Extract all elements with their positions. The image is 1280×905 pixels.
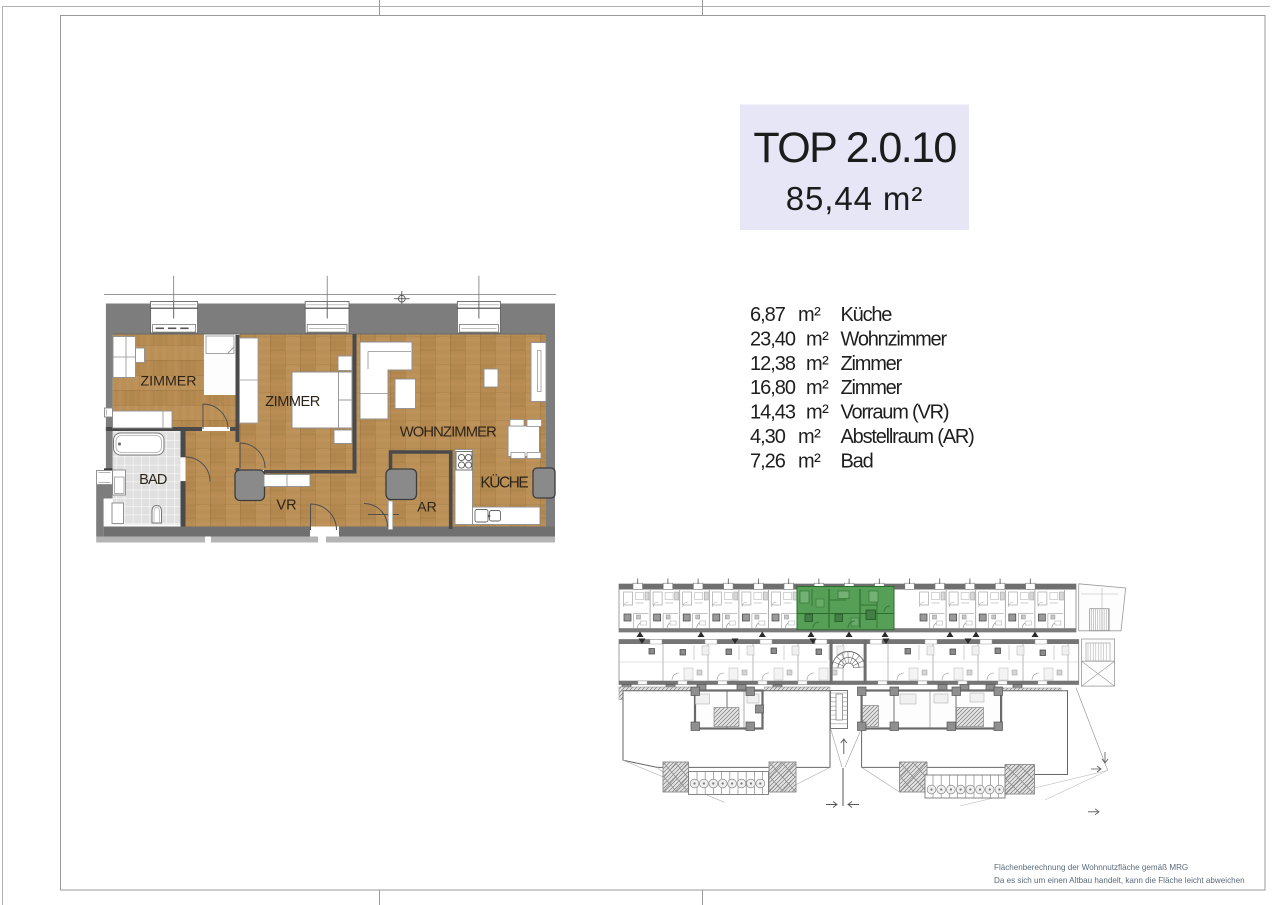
svg-text:m²: m²	[806, 377, 829, 399]
svg-text:14,43: 14,43	[750, 402, 796, 424]
svg-text:m²: m²	[806, 402, 829, 424]
svg-text:m²: m²	[806, 353, 829, 375]
svg-text:m²: m²	[798, 426, 821, 448]
svg-text:AR: AR	[417, 499, 436, 515]
svg-text:ZIMMER: ZIMMER	[265, 394, 320, 410]
svg-text:ZIMMER: ZIMMER	[141, 374, 197, 390]
svg-text:7,26: 7,26	[750, 450, 786, 472]
svg-text:Zimmer: Zimmer	[841, 353, 903, 375]
svg-text:KÜCHE: KÜCHE	[480, 474, 528, 492]
svg-text:Küche: Küche	[841, 304, 893, 326]
svg-text:BAD: BAD	[139, 472, 167, 488]
svg-text:TOP 2.0.10: TOP 2.0.10	[753, 124, 956, 172]
svg-text:WOHNZIMMER: WOHNZIMMER	[400, 425, 496, 441]
svg-text:6,87: 6,87	[750, 304, 786, 326]
svg-text:VR: VR	[276, 498, 296, 514]
svg-text:Bad: Bad	[841, 450, 873, 472]
svg-text:85,44 m²: 85,44 m²	[786, 180, 923, 217]
svg-text:12,38: 12,38	[750, 353, 796, 375]
svg-text:Vorraum (VR): Vorraum (VR)	[841, 402, 949, 424]
svg-text:4,30: 4,30	[750, 426, 786, 448]
svg-text:Flächenberechnung der Wohnnutz: Flächenberechnung der Wohnnutzfläche gem…	[994, 863, 1188, 872]
svg-text:23,40: 23,40	[750, 328, 796, 350]
svg-text:16,80: 16,80	[750, 377, 796, 399]
svg-text:Zimmer: Zimmer	[841, 377, 903, 399]
svg-text:m²: m²	[806, 328, 829, 350]
svg-text:Wohnzimmer: Wohnzimmer	[841, 328, 948, 350]
svg-text:Abstellraum (AR): Abstellraum (AR)	[841, 426, 975, 448]
svg-text:m²: m²	[798, 304, 821, 326]
svg-text:Da es sich um einen Altbau han: Da es sich um einen Altbau handelt, kann…	[994, 876, 1245, 885]
svg-text:m²: m²	[798, 450, 821, 472]
